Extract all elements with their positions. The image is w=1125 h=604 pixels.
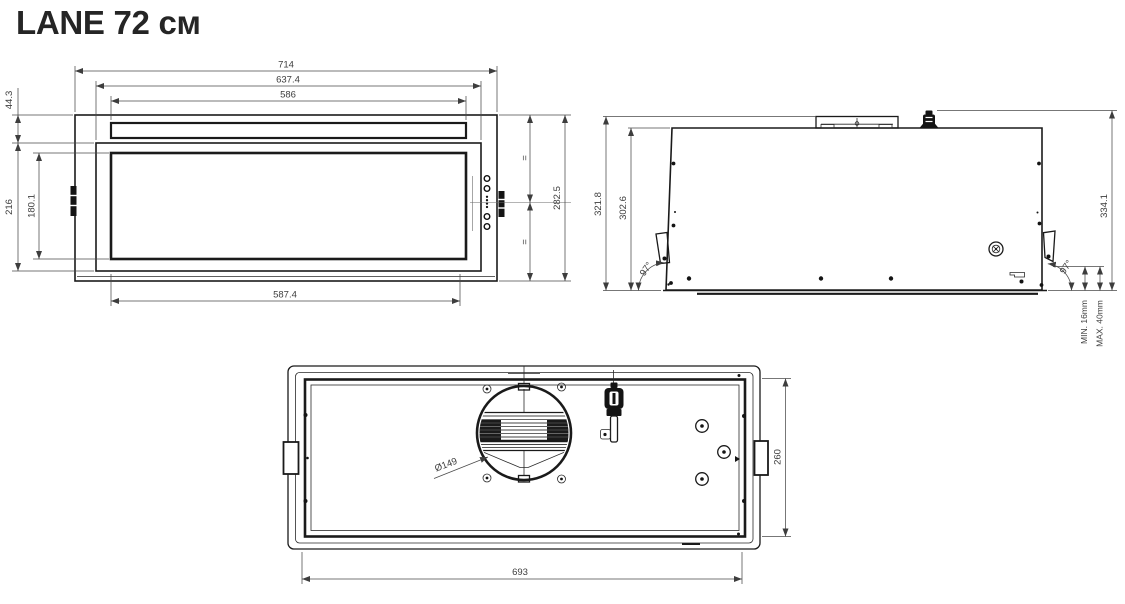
bottom-view: 693 260 Ø149: [284, 366, 792, 584]
glass-panel: [111, 153, 466, 259]
front-view-dimensions: 714 637.4 586 44.3 216 180.1 282.5 = = 5…: [4, 60, 571, 307]
hook-detail: [1010, 273, 1025, 284]
light-strip: [111, 123, 466, 138]
screw-dots: [667, 162, 1043, 287]
fan-opening: [476, 383, 572, 483]
dim-rear-angle: 97°: [1058, 258, 1075, 276]
hood-body-side: [666, 128, 1042, 290]
drawing-page: LANE 72 см: [0, 0, 1125, 604]
dim-panel-max: MAX. 40mm: [1095, 300, 1105, 347]
dim-panel-height: 216: [4, 199, 15, 215]
bottom-view-dimensions: 693 260 Ø149: [302, 379, 791, 585]
right-side-tab: [499, 191, 505, 217]
technical-drawing: 714 637.4 586 44.3 216 180.1 282.5 = = 5…: [0, 0, 1125, 604]
dim-front-height: 321.8: [593, 192, 604, 216]
dim-bottom-opening-width: 587.4: [273, 290, 297, 301]
dim-rear-height: 334.1: [1099, 194, 1110, 218]
dim-overall-width: 714: [278, 60, 294, 71]
bottom-view-body: [284, 366, 769, 549]
dim-opening-width: 693: [512, 567, 528, 578]
front-panel: [96, 143, 481, 271]
dim-front-angle: 97°: [638, 260, 655, 278]
dim-panel-min: MIN. 16mm: [1079, 300, 1089, 344]
hood-outer-frame: [75, 115, 497, 281]
motor-screw: [989, 242, 1003, 256]
dim-glass-width: 586: [280, 90, 296, 101]
front-view-body: [71, 115, 572, 281]
dim-overall-height: 282.5: [552, 186, 563, 210]
dim-glass-height: 180.1: [27, 194, 38, 218]
right-latch-tab: [755, 441, 769, 475]
dim-body-height: 302.6: [618, 196, 629, 220]
dim-duct-diameter: Ø149: [433, 456, 459, 475]
mounting-flange: [816, 117, 898, 129]
front-view: 714 637.4 586 44.3 216 180.1 282.5 = = 5…: [4, 60, 571, 307]
lamp-holes: [696, 420, 731, 486]
left-latch-tab: [284, 442, 299, 474]
dim-panel-width: 637.4: [276, 75, 300, 86]
dim-top-section-height: 44.3: [4, 91, 15, 110]
equal-mark-bottom: =: [520, 239, 531, 245]
dim-opening-depth: 260: [773, 449, 784, 465]
equal-mark-top: =: [520, 155, 531, 161]
panel-screw-dots: [304, 374, 747, 536]
left-side-tab: [71, 186, 77, 216]
bottom-panel: [305, 380, 745, 537]
side-view-body: [656, 111, 1055, 294]
cable-gland-side-icon: [920, 111, 939, 129]
side-view: 321.8 302.6 334.1 97° 97° MIN. 16mm MAX.…: [593, 111, 1117, 347]
